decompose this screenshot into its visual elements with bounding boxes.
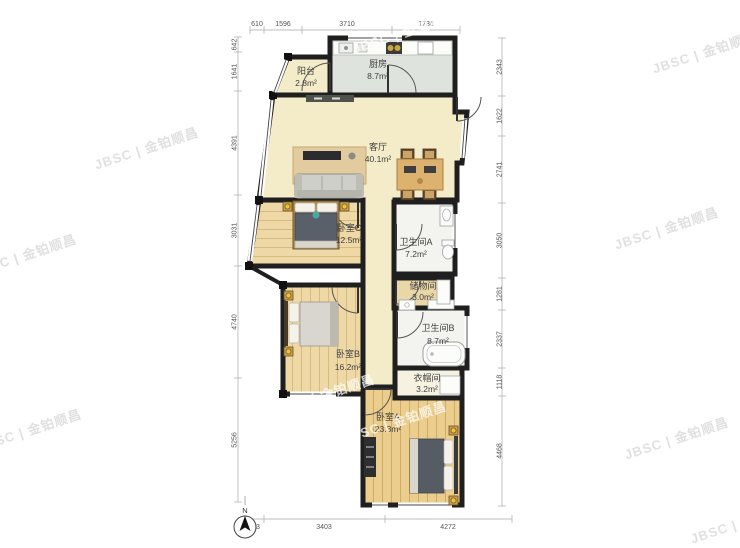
room-label: 储物间 [409, 280, 436, 291]
lamp-icon [286, 349, 291, 354]
room-area: 23.3m² [375, 424, 402, 434]
dim-label: 642 [232, 39, 239, 51]
dim-label: 4391 [232, 135, 239, 151]
rooms-layer [249, 38, 467, 505]
dining-table [397, 159, 443, 190]
dim-label: 610 [251, 21, 263, 28]
dim-label: 3031 [232, 223, 239, 239]
dim-label: 2337 [497, 331, 504, 347]
room-label: 卫生间B [421, 322, 454, 333]
compass-label: N [242, 506, 247, 515]
room-label: 卫生间A [399, 236, 432, 247]
dim-label: 1641 [232, 64, 239, 80]
tv-sofa-set [293, 147, 366, 198]
dim-left: 642 1641 4391 3031 4740 5256 [232, 37, 243, 502]
dim-label: 2741 [497, 162, 504, 178]
dim-label: 4272 [440, 524, 456, 531]
dim-right: 2343 1622 2741 3050 1281 2337 1118 4468 [497, 38, 507, 506]
cloak-cabinet [440, 376, 460, 394]
room-area: 16.2m² [335, 362, 362, 372]
room-label: 厨房 [369, 58, 387, 69]
room-area: 7.2m² [405, 249, 427, 259]
room-area: 3.0m² [412, 292, 434, 302]
window [462, 118, 465, 158]
dim-bottom: 793 3403 4272 [245, 515, 512, 531]
storage-cabinet [437, 280, 450, 304]
dim-label: 3403 [316, 524, 332, 531]
room-area: 2.8m² [295, 78, 317, 88]
lamp-icon [285, 204, 290, 209]
kitchen-counter [333, 41, 452, 55]
room-label: 客厅 [369, 141, 387, 152]
room-area: 8.7m² [367, 71, 389, 81]
dim-label: 1736 [418, 21, 434, 28]
dim-label: 2343 [497, 59, 504, 75]
dim-label: 1281 [497, 286, 504, 302]
room-label: 卧室B [336, 348, 360, 359]
tv-icon [303, 151, 341, 160]
room-area: 3.2m² [416, 384, 438, 394]
lamp-icon [451, 498, 456, 503]
room-label: 衣帽间 [413, 372, 440, 383]
dim-label: 1596 [275, 21, 291, 28]
dim-label: 1118 [497, 375, 504, 390]
room-label: 卧室A [376, 411, 400, 422]
exterior-wall-connector [249, 266, 283, 285]
room-label: 卧室C [337, 222, 362, 233]
dim-label: 1622 [497, 108, 504, 124]
room-label: 阳台 [297, 65, 315, 76]
dim-label: 5256 [232, 432, 239, 448]
floorplan-svg: 阳台 2.8m² 厨房 8.7m² 客厅 40.1m² 卧室C 12.5m² 卫… [0, 0, 740, 548]
dim-label: 3050 [497, 233, 504, 249]
room-area: 8.7m² [427, 336, 449, 346]
dim-top: 610 1596 3710 1736 [250, 21, 460, 34]
radiator [306, 95, 354, 102]
lamp-icon [286, 293, 291, 298]
floorplan-canvas: 阳台 2.8m² 厨房 8.7m² 客厅 40.1m² 卧室C 12.5m² 卫… [0, 0, 740, 548]
lamp-icon [451, 428, 456, 433]
lamp-icon [342, 204, 347, 209]
dim-label: 4468 [497, 443, 504, 459]
room-area: 40.1m² [365, 154, 392, 164]
dim-label: 3710 [339, 21, 355, 28]
room-area: 12.5m² [336, 235, 363, 245]
dim-label: 4740 [232, 314, 239, 330]
